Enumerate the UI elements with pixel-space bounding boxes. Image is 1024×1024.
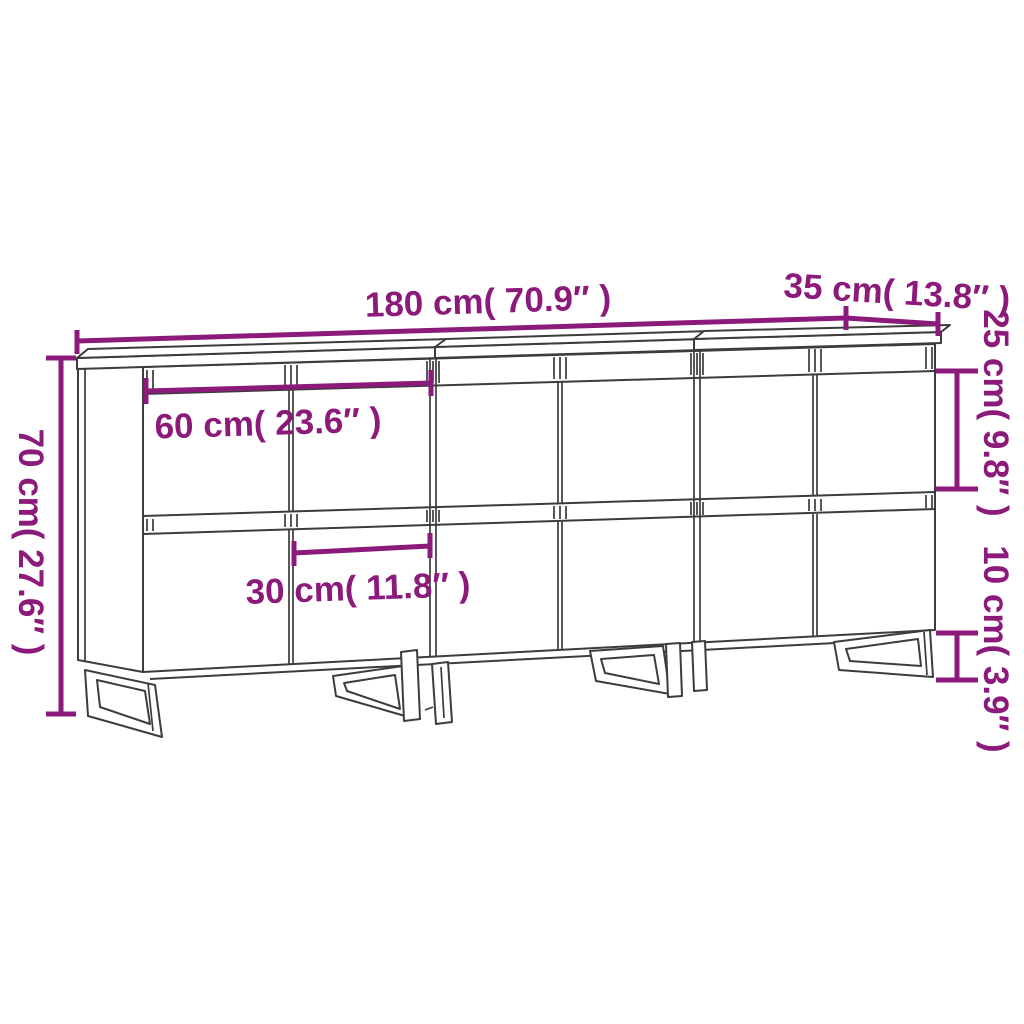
- leg-left-outer: [85, 670, 162, 737]
- dim-overall-width-label: 180 cm( 70.9″ ): [364, 278, 611, 325]
- diagram-canvas: 180 cm( 70.9″ ) 35 cm( 13.8″ ) 70 cm( 27…: [0, 0, 1024, 1024]
- dim-compartment-height: 25 cm( 9.8″ ): [936, 309, 1015, 516]
- dim-compartment-height-label: 25 cm( 9.8″ ): [976, 309, 1015, 516]
- left-side-panel: [78, 362, 143, 672]
- dim-leg-height: 10 cm( 3.9″ ): [936, 545, 1015, 752]
- dim-door-width-label: 30 cm( 11.8″ ): [245, 565, 471, 612]
- dim-overall-height: 70 cm( 27.6″ ): [11, 358, 76, 714]
- dim-leg-height-line: [936, 633, 978, 680]
- dim-leg-height-label: 10 cm( 3.9″ ): [976, 545, 1015, 752]
- product-dimension-diagram: 180 cm( 70.9″ ) 35 cm( 13.8″ ) 70 cm( 27…: [0, 0, 1024, 1024]
- leg-right-outer: [834, 630, 933, 677]
- leg-cluster-section2-right: [590, 641, 707, 697]
- dim-compartment-height-line: [936, 371, 978, 489]
- dim-overall-height-label: 70 cm( 27.6″ ): [11, 429, 50, 656]
- dim-section-width-label: 60 cm( 23.6″ ): [154, 400, 382, 446]
